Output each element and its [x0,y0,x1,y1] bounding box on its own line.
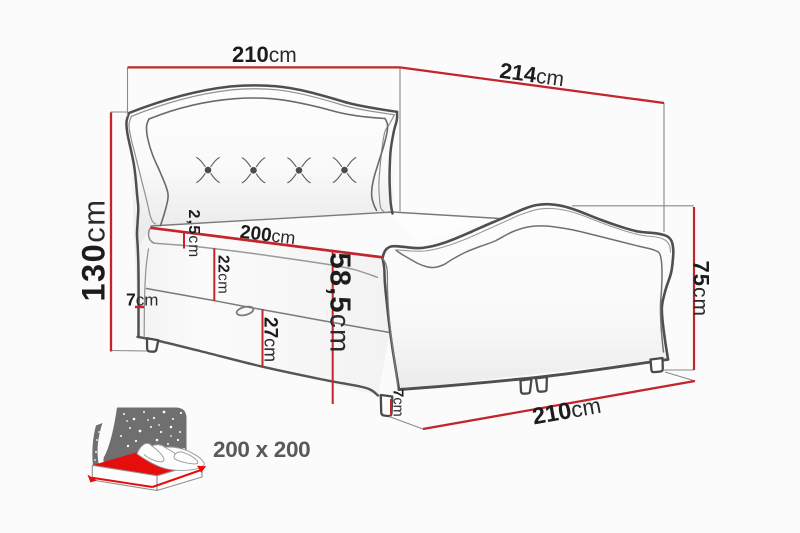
svg-text:214cm: 214cm [498,58,565,91]
svg-text:22cm: 22cm [215,255,232,294]
svg-text:130cm: 130cm [76,198,112,301]
svg-text:2,5cm: 2,5cm [185,210,202,259]
svg-text:7cm: 7cm [126,290,158,310]
svg-text:210cm: 210cm [232,42,297,67]
svg-text:58,5cm: 58,5cm [324,253,356,354]
svg-text:200 x 200: 200 x 200 [213,437,310,462]
svg-text:75cm: 75cm [689,261,714,317]
svg-text:7cm: 7cm [390,389,407,417]
svg-text:27cm: 27cm [260,317,281,362]
svg-text:210cm: 210cm [530,392,603,430]
